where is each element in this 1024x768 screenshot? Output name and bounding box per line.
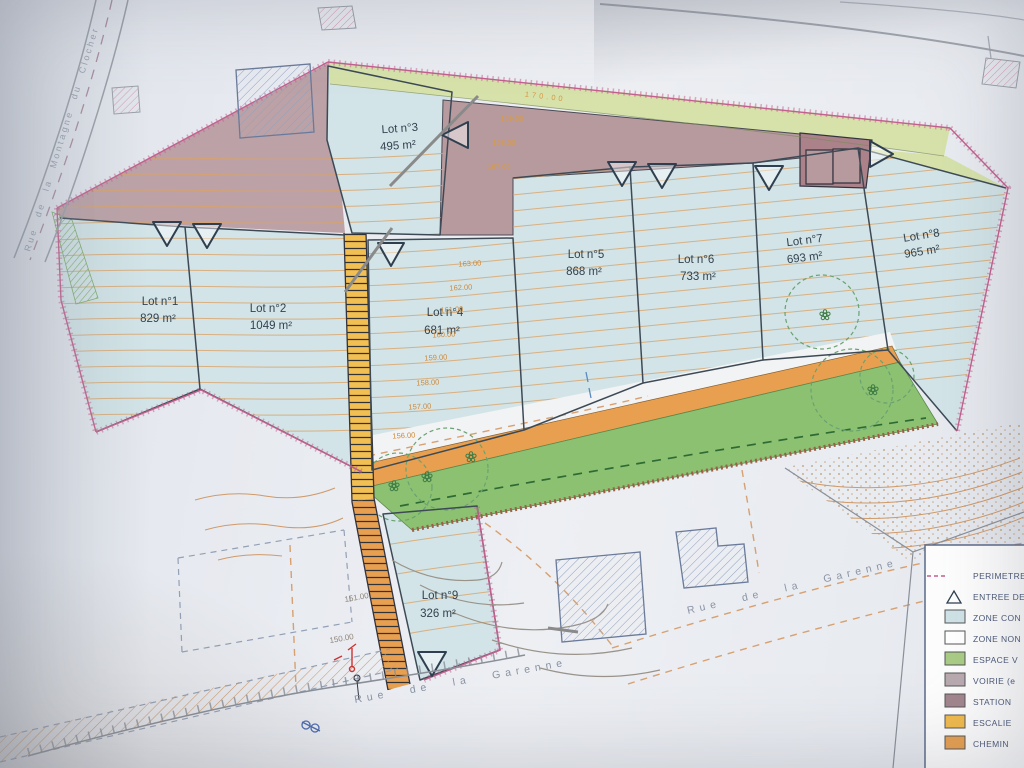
swatch xyxy=(945,715,965,728)
site-plan: Lot n°1 829 m² Lot n°2 1049 m² Lot n°3 4… xyxy=(0,0,1024,768)
svg-text:CHEMIN: CHEMIN xyxy=(973,739,1009,749)
building-existing xyxy=(236,64,314,138)
svg-text:ZONE NON: ZONE NON xyxy=(973,634,1021,644)
svg-text:ENTREE DE: ENTREE DE xyxy=(973,592,1024,602)
svg-text:Lot n°3: Lot n°3 xyxy=(381,122,418,137)
svg-text:162.00: 162.00 xyxy=(449,282,472,292)
hatch-patch xyxy=(318,6,356,30)
svg-text:ZONE CON: ZONE CON xyxy=(973,613,1021,623)
legend: PERIMETRE ENTREE DE ZONE CON ZONE NON ES… xyxy=(925,545,1024,768)
svg-text:495 m²: 495 m² xyxy=(380,139,417,153)
svg-text:Lot n°9: Lot n°9 xyxy=(422,590,459,602)
svg-text:161.00: 161.00 xyxy=(440,304,463,314)
svg-text:150.00: 150.00 xyxy=(329,632,355,645)
svg-text:ESCALIE: ESCALIE xyxy=(973,718,1012,728)
svg-text:160.00: 160.00 xyxy=(432,329,455,339)
svg-text:163.00: 163.00 xyxy=(458,258,481,268)
svg-text:326 m²: 326 m² xyxy=(420,608,456,620)
svg-text:Lot n°6: Lot n°6 xyxy=(678,254,715,266)
svg-text:156.00: 156.00 xyxy=(392,430,415,440)
swatch xyxy=(945,673,965,686)
slope-hatch-band xyxy=(0,649,398,762)
hatch-patch xyxy=(982,58,1020,88)
svg-text:168.00: 168.00 xyxy=(493,138,516,147)
building-existing xyxy=(676,528,748,588)
svg-text:169.00: 169.00 xyxy=(501,114,524,123)
svg-text:868 m²: 868 m² xyxy=(566,266,602,278)
svg-text:Lot n°1: Lot n°1 xyxy=(142,296,179,308)
svg-text:158.00: 158.00 xyxy=(416,377,439,387)
photographed-subdivision-plan: Lot n°1 829 m² Lot n°2 1049 m² Lot n°3 4… xyxy=(0,0,1024,768)
svg-text:733 m²: 733 m² xyxy=(680,271,716,283)
swatch xyxy=(945,652,965,665)
svg-text:167.00: 167.00 xyxy=(488,162,511,171)
svg-text:829 m²: 829 m² xyxy=(140,313,176,325)
building-existing xyxy=(556,552,646,642)
page-curl xyxy=(600,2,1024,58)
svg-text:PERIMETRE: PERIMETRE xyxy=(973,571,1024,581)
utility-symbol xyxy=(302,721,320,732)
svg-text:151.00: 151.00 xyxy=(344,591,370,604)
swatch xyxy=(945,736,965,749)
svg-text:Lot n°2: Lot n°2 xyxy=(250,303,287,315)
svg-text:VOIRIE (e: VOIRIE (e xyxy=(973,676,1015,686)
svg-text:1049 m²: 1049 m² xyxy=(250,320,292,332)
svg-text:STATION: STATION xyxy=(973,697,1011,707)
svg-text:157.00: 157.00 xyxy=(408,401,431,411)
svg-text:Lot n°5: Lot n°5 xyxy=(568,249,605,261)
lot-2-fill xyxy=(185,227,362,472)
swatch xyxy=(945,631,965,644)
svg-text:ESPACE V: ESPACE V xyxy=(973,655,1018,665)
svg-text:159.00: 159.00 xyxy=(424,352,447,362)
swatch xyxy=(945,610,965,623)
hatch-patch xyxy=(112,86,140,114)
swatch xyxy=(945,694,965,707)
